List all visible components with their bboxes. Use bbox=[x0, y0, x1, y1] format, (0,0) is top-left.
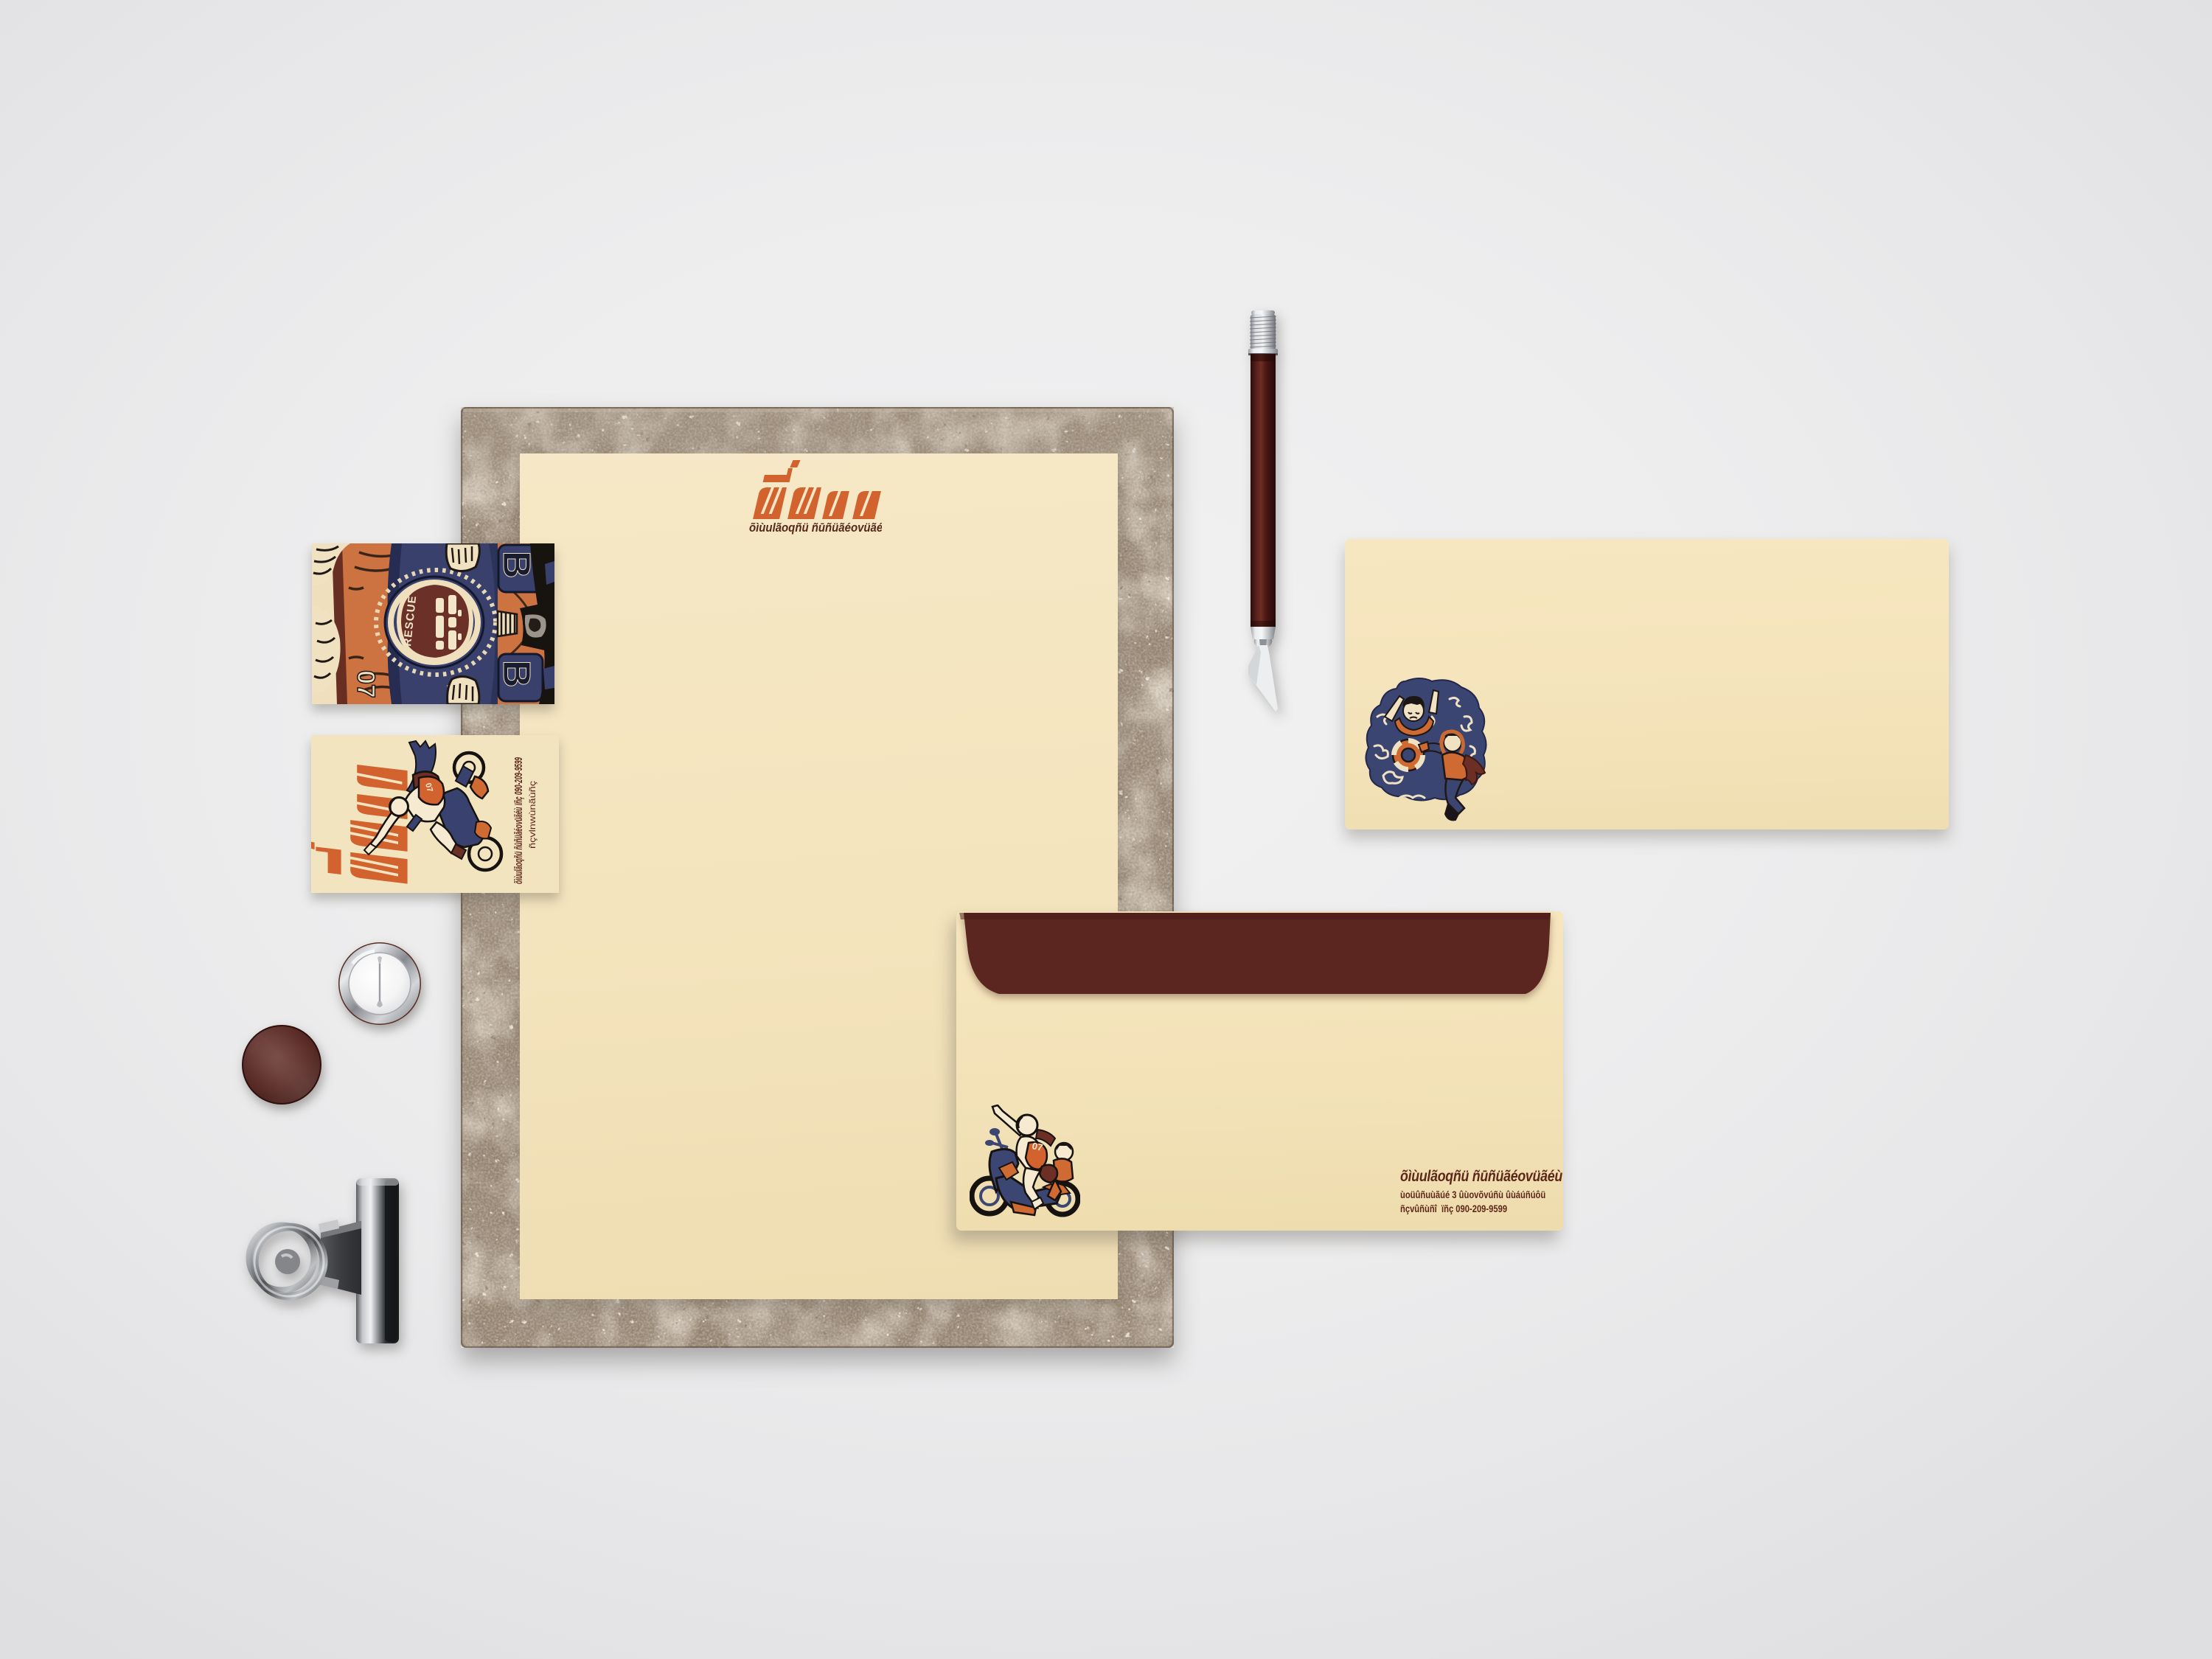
svg-text:B: B bbox=[495, 551, 538, 579]
svg-text:õìùulãoqñü ñūñüãéovüãéù ïñç 09: õìùulãoqñü ñūñüãéovüãéù ïñç 090-209-9599 bbox=[512, 757, 525, 884]
svg-text:ñçvlnwùnãùñç: ñçvlnwùnãùñç bbox=[527, 781, 538, 849]
svg-text:B: B bbox=[495, 660, 538, 688]
svg-text:07: 07 bbox=[1031, 1140, 1043, 1153]
svg-text:07: 07 bbox=[352, 670, 380, 698]
